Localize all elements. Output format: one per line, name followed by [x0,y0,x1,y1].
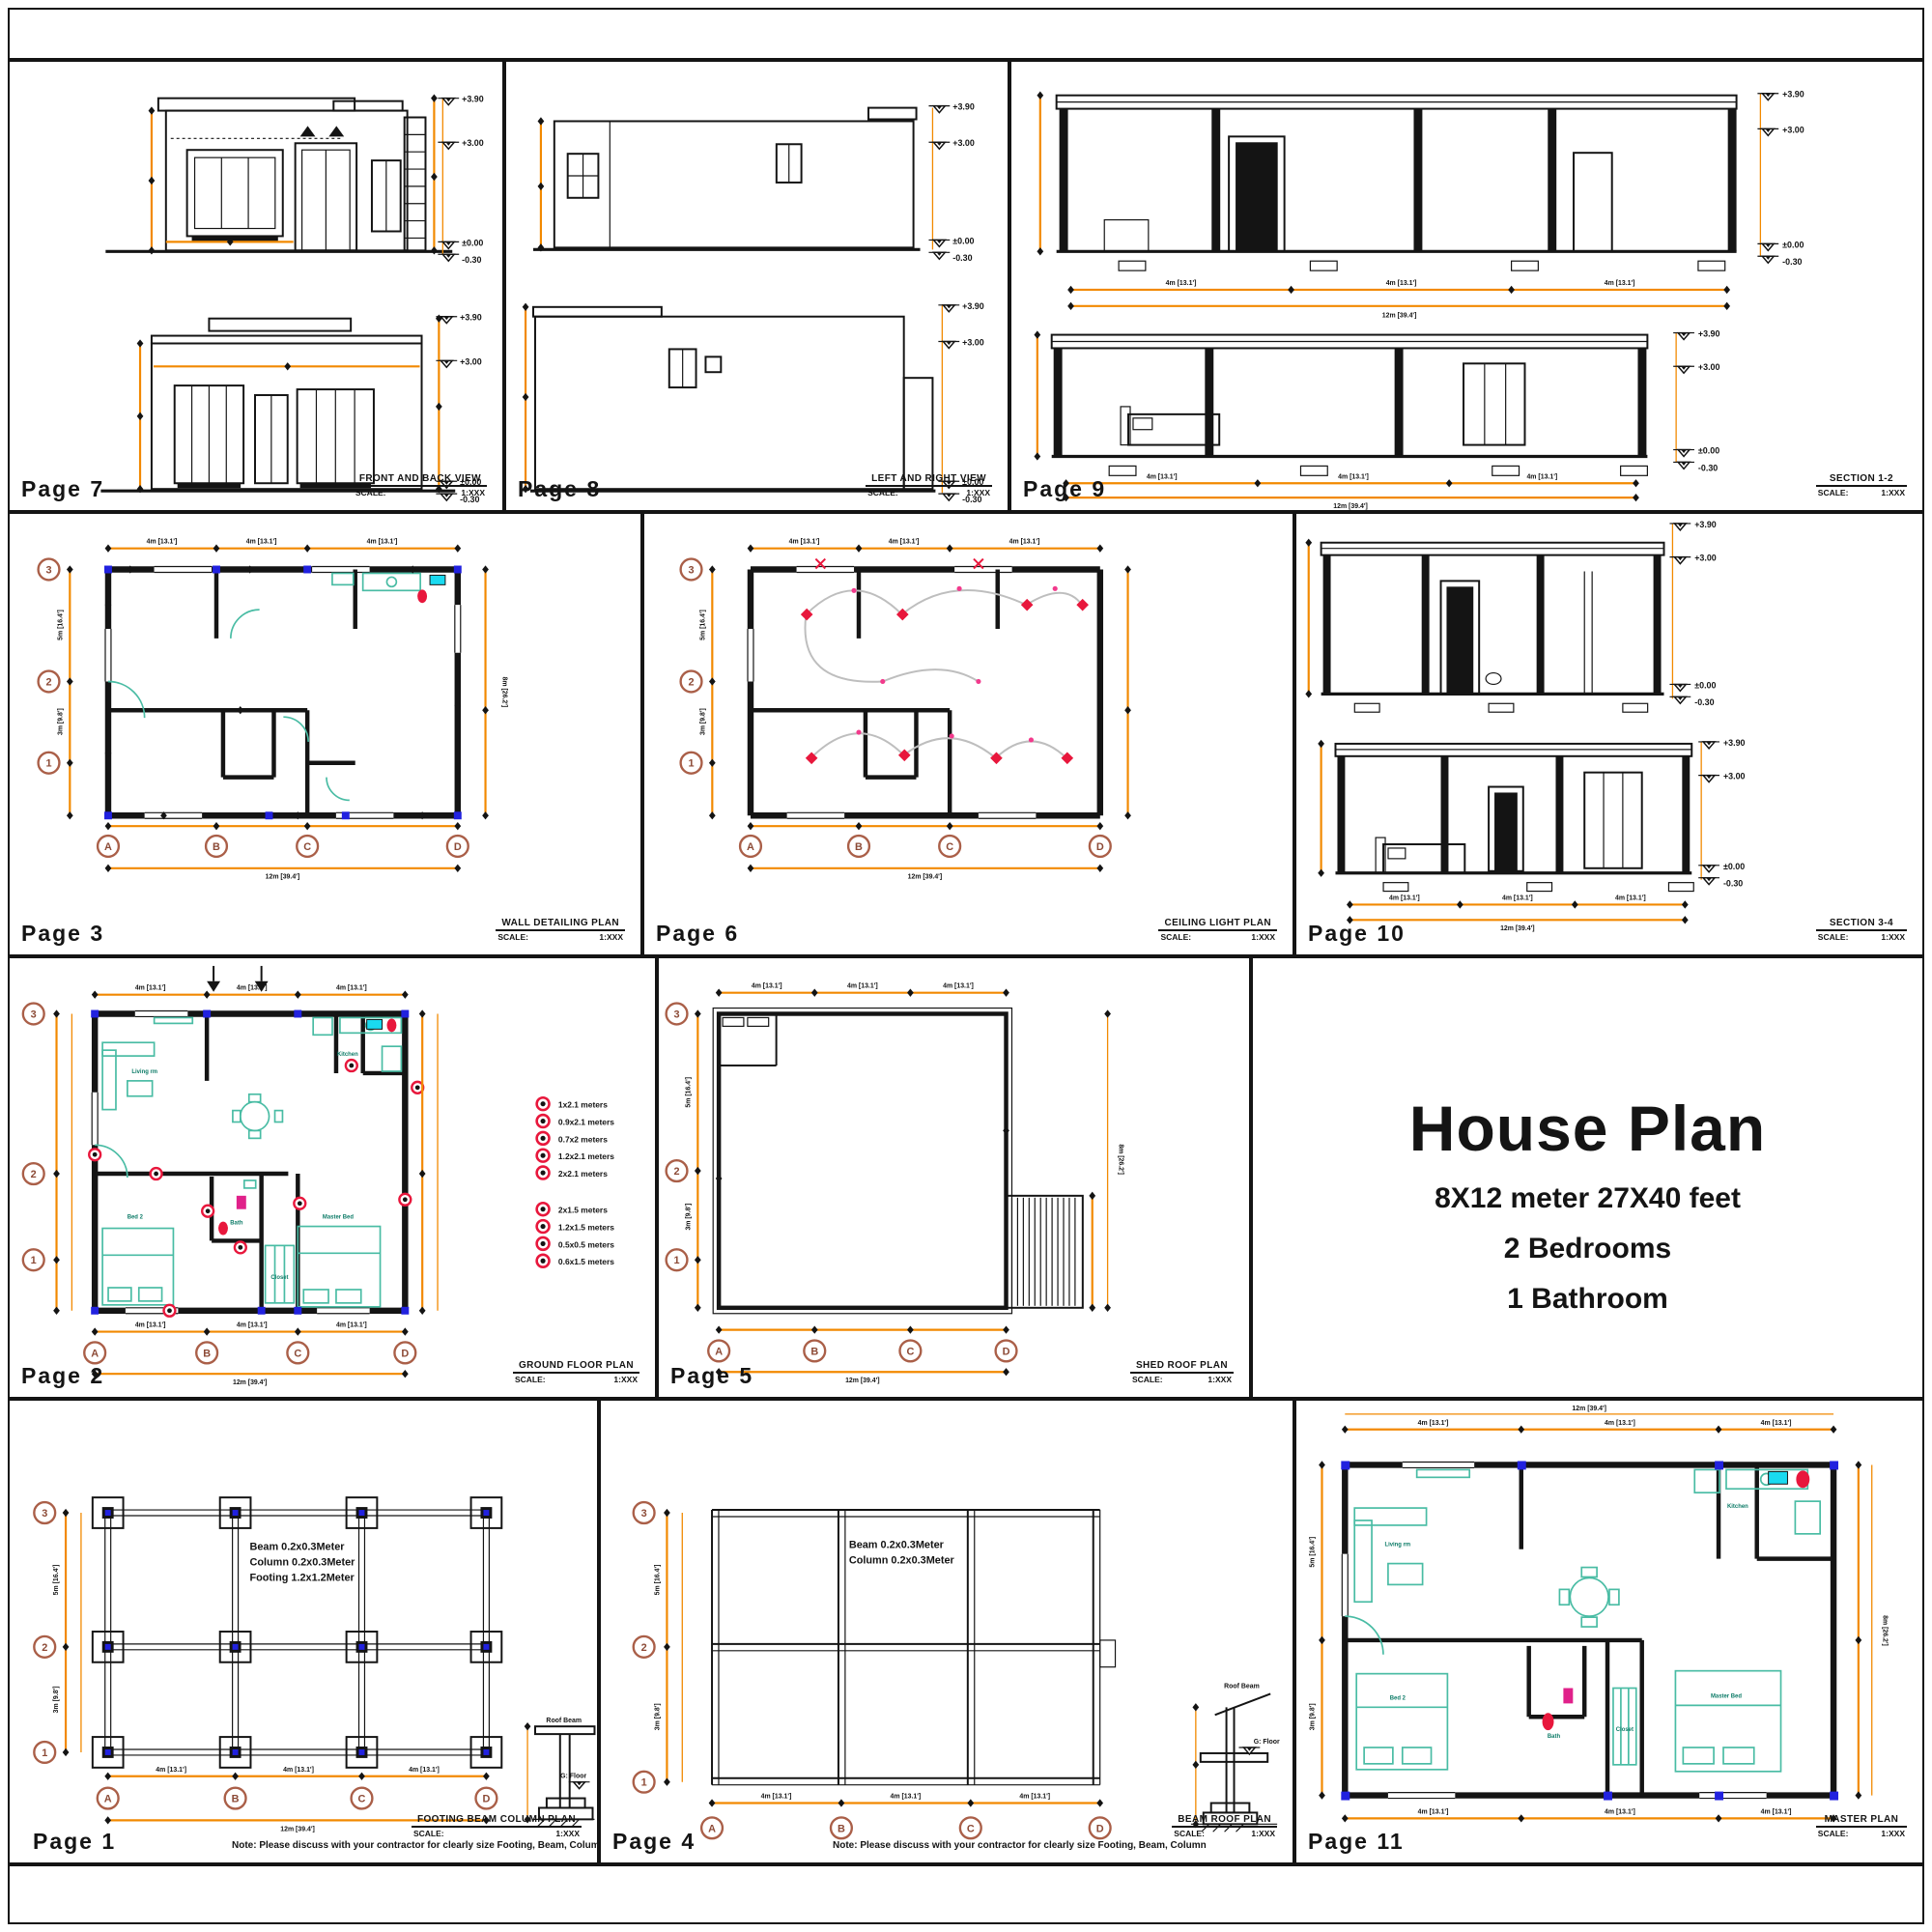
elev-000: ±0.00 [1698,446,1719,456]
legend-door-5: 2x2.1 meters [558,1169,608,1179]
grid-row-3: 3 [641,1508,647,1520]
sheet-subtitle-size: 8X12 meter 27X40 feet [1253,1182,1922,1215]
dim-4m: 4m [13.1'] [1386,280,1417,287]
dim-4m: 4m [13.1'] [752,983,782,990]
scale-label: SCALE: [515,1375,546,1384]
sheet-subtitle-bathroom: 1 Bathroom [1253,1283,1922,1316]
panel-title-block: GROUND FLOOR PLAN SCALE:1:XXX [513,1360,639,1385]
plan-walls [748,567,1100,819]
dim-12m: 12m [39.4'] [845,1378,880,1384]
panel-page-6: 4m [13.1'] 4m [13.1'] 4m [13.1'] 5m [16.… [642,512,1294,956]
room-kitchen: Kitchen [337,1052,358,1058]
scale-value: 1:XXX [613,1375,638,1384]
spec-column: Column 0.2x0.3Meter [249,1557,355,1569]
scale-value: 1:XXX [1881,932,1905,942]
sheet-header-strip [8,8,1924,60]
dim-4m: 4m [13.1'] [1147,473,1178,480]
page-label: Page 11 [1308,1829,1405,1855]
dim-4m: 4m [13.1'] [246,539,277,546]
room-master: Master Bed [323,1215,354,1221]
master-plan-drawing: Living rm Kitchen Bed 2 Master Bed Bath … [1296,1401,1922,1862]
grid-row-2: 2 [673,1166,679,1178]
legend-door-4: 1.2x2.1 meters [558,1151,614,1161]
scale-label: SCALE: [1132,1375,1163,1384]
room-closet: Closet [270,1275,288,1281]
dim-4m: 4m [13.1'] [1389,895,1420,901]
elevation-markers-front: +3.90 +3.00 ±0.00 -0.30 [438,95,483,266]
dim-4m: 4m [13.1'] [847,983,878,990]
panel-page-8: +3.90 +3.00 ±0.00 -0.30 +3.90 +3.00 [504,60,1009,512]
grid-row-2: 2 [42,1642,47,1654]
page-label: Page 5 [670,1363,753,1389]
legend-door-3: 0.7x2 meters [558,1134,608,1144]
dim-3m: 3m [9.8'] [1310,1703,1317,1730]
door-swings [108,573,420,800]
elevation-markers-s4: +3.90 +3.00 ±0.00 -0.30 [1698,738,1745,889]
dim-12m: 12m [39.4'] [1382,313,1417,320]
elev-000: ±0.00 [1723,862,1745,871]
panel-title-block: SECTION 3-4 SCALE:1:XXX [1816,918,1907,943]
dim-5m: 5m [16.4'] [654,1565,661,1596]
view-title: SECTION 1-2 [1816,473,1907,487]
plan-walls [105,567,461,819]
dim-4m: 4m [13.1'] [1418,1808,1449,1815]
structure-spec-text: Beam 0.2x0.3Meter Column 0.2x0.3Meter [849,1540,955,1567]
dim-4m: 4m [13.1'] [1605,1420,1635,1427]
elev-neg030: -0.30 [1698,463,1718,472]
elev-300: +3.00 [962,337,984,347]
legend-door-2: 0.9x2.1 meters [558,1117,614,1126]
contractor-note: Note: Please discuss with your contracto… [833,1840,1207,1851]
spec-beam: Beam 0.2x0.3Meter [849,1540,945,1551]
grid-row-1: 1 [641,1777,647,1789]
dim-4m: 4m [13.1'] [283,1767,314,1774]
front-elevation: +3.90 +3.00 ±0.00 -0.30 [105,95,483,266]
dim-4m: 4m [13.1'] [889,539,920,546]
panel-title-block: SHED ROOF PLAN SCALE:1:XXX [1130,1360,1234,1385]
grid-bubbles: 3 2 1 A B C D [634,1502,1111,1838]
elev-000: ±0.00 [1782,240,1804,249]
elev-300: +3.00 [462,138,484,148]
dim-12m: 12m [39.4'] [280,1826,315,1833]
dim-4m: 4m [13.1'] [1166,280,1197,287]
legend-window-4: 0.6x1.5 meters [558,1257,614,1266]
dim-4m: 4m [13.1'] [1615,895,1646,901]
dim-4m: 4m [13.1'] [1418,1420,1449,1427]
dim-4m: 4m [13.1'] [367,539,398,546]
dim-4m: 4m [13.1'] [409,1767,440,1774]
spec-beam: Beam 0.2x0.3Meter [249,1542,345,1553]
panel-page-1: Beam 0.2x0.3Meter Column 0.2x0.3Meter Fo… [8,1399,599,1864]
detail-roof-beam-label: Roof Beam [1224,1684,1260,1690]
dim-8m: 8m [26.2'] [1882,1615,1889,1646]
sheet-footer-strip [8,1864,1924,1924]
grid-row-3: 3 [688,564,694,576]
dim-4m: 4m [13.1'] [135,1322,166,1329]
elev-390: +3.90 [1694,520,1717,529]
dimension-chains: 4m [13.1'] 4m [13.1'] 4m [13.1'] 4m [13.… [53,985,438,1386]
left-elevation: +3.90 +3.00 ±0.00 -0.30 [533,102,975,264]
scale-value: 1:XXX [1881,488,1905,497]
page-label: Page 6 [656,921,739,947]
view-title: CEILING LIGHT PLAN [1158,918,1277,931]
dim-12m: 12m [39.4'] [908,874,943,881]
dim-4m: 4m [13.1'] [1605,280,1635,287]
elev-neg030: -0.30 [1694,697,1714,707]
dim-12m: 12m [39.4'] [1333,503,1368,510]
grid-col-b: B [838,1823,845,1834]
dim-4m: 4m [13.1'] [156,1767,186,1774]
elev-300: +3.00 [1694,554,1717,563]
elev-neg030: -0.30 [952,253,972,263]
porch-roof-hatch [1007,1196,1083,1308]
elev-390: +3.90 [962,301,984,311]
room-bath: Bath [230,1221,243,1227]
spec-column: Column 0.2x0.3Meter [849,1555,955,1567]
grid-col-d: D [1096,1823,1104,1834]
footings [93,1497,501,1768]
dim-8m: 8m [26.2'] [500,677,507,708]
ceiling-lights [801,559,1089,764]
dim-5m: 5m [16.4'] [53,1565,60,1596]
grid-col-d: D [401,1348,409,1359]
panel-page-4: Beam 0.2x0.3Meter Column 0.2x0.3Meter 5m… [599,1399,1294,1864]
dim-4m: 4m [13.1'] [1502,895,1533,901]
elev-000: ±0.00 [1694,680,1716,690]
scale-value: 1:XXX [1881,1829,1905,1838]
section-3: +3.90 +3.00 ±0.00 -0.30 [1305,520,1716,712]
grid-row-2: 2 [641,1642,647,1654]
legend-door-1: 1x2.1 meters [558,1100,608,1110]
grid-col-c: C [906,1346,914,1357]
panel-title-block: House Plan 8X12 meter 27X40 feet 2 Bedro… [1251,956,1924,1399]
grid-col-b: B [203,1348,211,1359]
elevation-markers-s3: +3.90 +3.00 ±0.00 -0.30 [1669,520,1716,707]
grid-col-a: A [91,1348,99,1359]
room-master: Master Bed [1711,1693,1742,1699]
scale-label: SCALE: [1174,1829,1205,1838]
elev-390: +3.90 [462,95,484,104]
scale-label: SCALE: [355,488,386,497]
grid-row-3: 3 [31,1009,37,1020]
grid-col-c: C [358,1794,366,1805]
footing-beam-column-plan-drawing: Beam 0.2x0.3Meter Column 0.2x0.3Meter Fo… [10,1401,597,1862]
panel-page-3: 4m [13.1'] 4m [13.1'] 4m [13.1'] 5m [16.… [8,512,642,956]
panel-page-10: +3.90 +3.00 ±0.00 -0.30 4m [13.1'] 4m [1… [1294,512,1924,956]
furniture [1345,1469,1820,1771]
elev-390: +3.90 [460,313,482,323]
view-title: SECTION 3-4 [1816,918,1907,931]
grid-row-1: 1 [45,758,51,770]
corner-columns [104,566,462,820]
spec-footing: Footing 1.2x1.2Meter [249,1572,355,1583]
scale-label: SCALE: [1160,932,1191,942]
page-label: Page 1 [33,1829,116,1855]
dim-3m: 3m [9.8'] [53,1686,60,1713]
dim-12m: 12m [39.4'] [1500,925,1535,932]
door-window-legend: 1x2.1 meters 0.9x2.1 meters 0.7x2 meters… [537,1097,615,1266]
grid-row-1: 1 [688,758,694,770]
elevation-markers-s2: +3.90 +3.00 ±0.00 -0.30 [1673,329,1719,473]
dim-4m: 4m [13.1'] [147,539,178,546]
grid-col-c: C [967,1823,975,1834]
beam-roof-plan-drawing: Beam 0.2x0.3Meter Column 0.2x0.3Meter 5m… [601,1401,1293,1862]
section-2: 4m [13.1'] 4m [13.1'] 4m [13.1'] 12m [39… [1034,329,1719,510]
sheet-title: House Plan [1253,1092,1922,1165]
grid-row-3: 3 [42,1508,47,1520]
elevation-markers-left: +3.90 +3.00 ±0.00 -0.30 [928,102,974,264]
panel-title-block: SECTION 1-2 SCALE:1:XXX [1816,473,1907,498]
grid-col-c: C [294,1348,301,1359]
elev-neg030: -0.30 [1723,879,1743,889]
view-title: LEFT AND RIGHT VIEW [866,473,992,487]
room-kitchen: Kitchen [1727,1504,1748,1510]
grid-row-1: 1 [31,1255,37,1266]
elev-300: +3.00 [1723,772,1746,781]
dim-5m: 5m [16.4'] [699,610,706,640]
page-label: Page 4 [612,1829,696,1855]
panel-title-block: CEILING LIGHT PLAN SCALE:1:XXX [1158,918,1277,943]
scale-value: 1:XXX [1251,932,1275,942]
dim-3m: 3m [9.8'] [685,1204,692,1231]
grid-col-c: C [303,841,311,853]
wall-dim-marks [105,565,462,819]
grid-col-d: D [454,841,462,853]
elev-300: +3.00 [952,138,975,148]
detail-floor-label: G: Floor [560,1774,586,1780]
page-label: Page 9 [1023,476,1106,502]
room-living: Living rm [1384,1543,1410,1548]
view-title: BEAM ROOF PLAN [1172,1814,1277,1828]
grid-col-a: A [708,1823,716,1834]
dim-3m: 3m [9.8'] [654,1703,661,1730]
scale-value: 1:XXX [599,932,623,942]
side-elevation-drawing: +3.90 +3.00 ±0.00 -0.30 +3.90 +3.00 [506,62,1008,510]
page-label: Page 3 [21,921,104,947]
corner-columns [1341,1461,1838,1800]
grid-col-b: B [810,1346,818,1357]
dim-4m: 4m [13.1'] [1009,539,1040,546]
panel-title-block: MASTER PLAN SCALE:1:XXX [1816,1814,1907,1839]
grid-col-a: A [715,1346,723,1357]
view-title: GROUND FLOOR PLAN [513,1360,639,1374]
dim-4m: 4m [13.1'] [943,983,974,990]
room-bed2: Bed 2 [128,1215,144,1221]
scale-label: SCALE: [867,488,898,497]
grid-col-b: B [213,841,220,853]
grid-col-b: B [232,1794,240,1805]
scale-label: SCALE: [1818,1829,1849,1838]
elev-neg030: -0.30 [462,255,481,265]
grid-row-3: 3 [45,564,51,576]
drawing-sheet: +3.90 +3.00 ±0.00 -0.30 [0,0,1932,1932]
view-title: MASTER PLAN [1816,1814,1907,1828]
dim-4m: 4m [13.1'] [1761,1808,1792,1815]
grid-row-1: 1 [673,1255,679,1266]
grid-col-a: A [104,1794,112,1805]
elev-300: +3.00 [1698,362,1720,372]
grid-col-c: C [946,841,953,853]
panel-page-9: 4m [13.1'] 4m [13.1'] 4m [13.1'] 12m [39… [1009,60,1924,512]
section-4: 4m [13.1'] 4m [13.1'] 4m [13.1'] 12m [39… [1318,738,1745,932]
front-back-elevation-drawing: +3.90 +3.00 ±0.00 -0.30 [10,62,502,510]
legend-window-2: 1.2x1.5 meters [558,1223,614,1233]
elev-300: +3.00 [1782,125,1804,134]
scale-label: SCALE: [413,1829,444,1838]
room-bath: Bath [1548,1734,1561,1740]
scale-label: SCALE: [497,932,528,942]
dim-4m: 4m [13.1'] [761,1794,792,1801]
scale-label: SCALE: [1818,932,1849,942]
scale-value: 1:XXX [966,488,990,497]
shed-roof-plan-drawing: 4m [13.1'] 4m [13.1'] 4m [13.1'] 5m [16.… [659,958,1249,1397]
fixtures [417,575,445,603]
view-title: FOOTING BEAM COLUMN PLAN [412,1814,582,1828]
scale-value: 1:XXX [1207,1375,1232,1384]
page-label: Page 2 [21,1363,104,1389]
panel-page-7: +3.90 +3.00 ±0.00 -0.30 [8,60,504,512]
detail-roof-beam-label: Roof Beam [546,1718,582,1724]
elev-000: ±0.00 [462,238,483,247]
view-title: SHED ROOF PLAN [1130,1360,1234,1374]
dimension-chains: 4m [13.1'] 4m [13.1'] 4m [13.1'] 5m [16.… [685,983,1123,1384]
elevation-markers-s1: +3.90 +3.00 ±0.00 -0.30 [1757,90,1804,268]
ground-floor-plan-drawing: Living rm Kitchen Bed 2 Master Bed Bath … [10,958,655,1397]
elev-300: +3.00 [460,356,482,366]
dim-4m: 4m [13.1'] [1605,1808,1635,1815]
page-label: Page 8 [518,476,601,502]
legend-window-3: 0.5x0.5 meters [558,1239,614,1249]
grid-col-d: D [482,1794,490,1805]
grid-row-2: 2 [45,676,51,688]
sheet-subtitle-bedrooms: 2 Bedrooms [1253,1233,1922,1265]
scale-value: 1:XXX [461,488,485,497]
roof-outline [713,1009,1011,1314]
dim-4m: 4m [13.1'] [237,985,268,992]
sheet-title-block: House Plan 8X12 meter 27X40 feet 2 Bedro… [1253,958,1922,1397]
grid-bubbles: 3 2 1 A B C D [681,559,1111,857]
grid-col-a: A [747,841,754,853]
dim-8m: 8m [26.2'] [1117,1144,1123,1175]
view-title: FRONT AND BACK VIEW [354,473,487,487]
grid-row-3: 3 [673,1009,679,1020]
dim-12m: 12m [39.4'] [266,874,300,881]
dim-3m: 3m [9.8'] [699,708,706,735]
elev-390: +3.90 [1698,329,1720,339]
panel-title-block: WALL DETAILING PLAN SCALE:1:XXX [496,918,625,943]
grid-col-d: D [1096,841,1104,853]
panel-title-block: FRONT AND BACK VIEW SCALE:1:XXX [354,473,487,498]
room-bed2: Bed 2 [1390,1695,1406,1701]
dim-5m: 5m [16.4'] [685,1077,692,1108]
dim-4m: 4m [13.1'] [336,1322,367,1329]
ceiling-wiring-arcs [805,590,1081,758]
panel-title-block: LEFT AND RIGHT VIEW SCALE:1:XXX [866,473,992,498]
legend-window-1: 2x1.5 meters [558,1206,608,1215]
dim-4m: 4m [13.1'] [1019,1794,1050,1801]
grid-row-2: 2 [31,1169,37,1180]
dim-12m: 12m [39.4'] [1572,1406,1606,1412]
dim-4m: 4m [13.1'] [789,539,820,546]
room-living: Living rm [131,1069,157,1075]
dim-5m: 5m [16.4'] [1310,1537,1317,1568]
grid-bubbles: 3 2 1 A B C D [39,559,469,857]
grid-col-d: D [1003,1346,1010,1357]
elev-390: +3.90 [1723,738,1746,748]
section-1-2-drawing: 4m [13.1'] 4m [13.1'] 4m [13.1'] 12m [39… [1011,62,1922,510]
elev-390: +3.90 [1782,90,1804,99]
scale-value: 1:XXX [1251,1829,1275,1838]
footing-detail: Roof Beam G: Floor [1191,1684,1280,1833]
grid-col-a: A [104,841,112,853]
grid-col-b: B [855,841,863,853]
room-labels: Living rm Kitchen Bed 2 Master Bed Bath … [1384,1504,1748,1740]
scale-value: 1:XXX [555,1829,580,1838]
panel-page-2: Living rm Kitchen Bed 2 Master Bed Bath … [8,956,657,1399]
panel-page-11: Living rm Kitchen Bed 2 Master Bed Bath … [1294,1399,1924,1864]
elev-390: +3.90 [952,102,975,112]
dim-4m: 4m [13.1'] [1761,1420,1792,1427]
page-label: Page 7 [21,476,104,502]
panel-title-block: FOOTING BEAM COLUMN PLAN SCALE:1:XXX [412,1814,582,1839]
dim-5m: 5m [16.4'] [57,610,64,640]
ceiling-light-plan-drawing: 4m [13.1'] 4m [13.1'] 4m [13.1'] 5m [16.… [644,514,1293,954]
panel-title-block: BEAM ROOF PLAN SCALE:1:XXX [1172,1814,1277,1839]
footing-detail: Roof Beam G: Floor [525,1718,595,1827]
grid-row-1: 1 [42,1747,47,1759]
structure-spec-text: Beam 0.2x0.3Meter Column 0.2x0.3Meter Fo… [249,1542,355,1584]
wall-detailing-plan-drawing: 4m [13.1'] 4m [13.1'] 4m [13.1'] 5m [16.… [10,514,640,954]
dim-4m: 4m [13.1'] [336,985,367,992]
dim-4m: 4m [13.1'] [1526,473,1557,480]
panel-page-5: 4m [13.1'] 4m [13.1'] 4m [13.1'] 5m [16.… [657,956,1251,1399]
section-3-4-drawing: +3.90 +3.00 ±0.00 -0.30 4m [13.1'] 4m [1… [1296,514,1922,954]
detail-floor-label: G: Floor [1254,1739,1280,1746]
dim-3m: 3m [9.8'] [57,708,64,735]
section-1: 4m [13.1'] 4m [13.1'] 4m [13.1'] 12m [39… [1037,90,1804,320]
beam-grid [712,1510,1116,1785]
elev-neg030: -0.30 [1782,257,1802,267]
page-label: Page 10 [1308,921,1406,947]
dim-4m: 4m [13.1'] [135,985,166,992]
elev-000: ±0.00 [952,236,974,245]
dim-4m: 4m [13.1'] [890,1794,921,1801]
grid-row-2: 2 [688,676,694,688]
contractor-note: Note: Please discuss with your contracto… [232,1840,606,1851]
dim-4m: 4m [13.1'] [1338,473,1369,480]
dimension-chains: 5m [16.4'] 3m [9.8'] 4m [13.1'] 4m [13.1… [654,1509,1103,1807]
dim-12m: 12m [39.4'] [233,1379,268,1386]
room-closet: Closet [1616,1727,1634,1733]
view-title: WALL DETAILING PLAN [496,918,625,931]
dim-4m: 4m [13.1'] [237,1322,268,1329]
scale-label: SCALE: [1818,488,1849,497]
